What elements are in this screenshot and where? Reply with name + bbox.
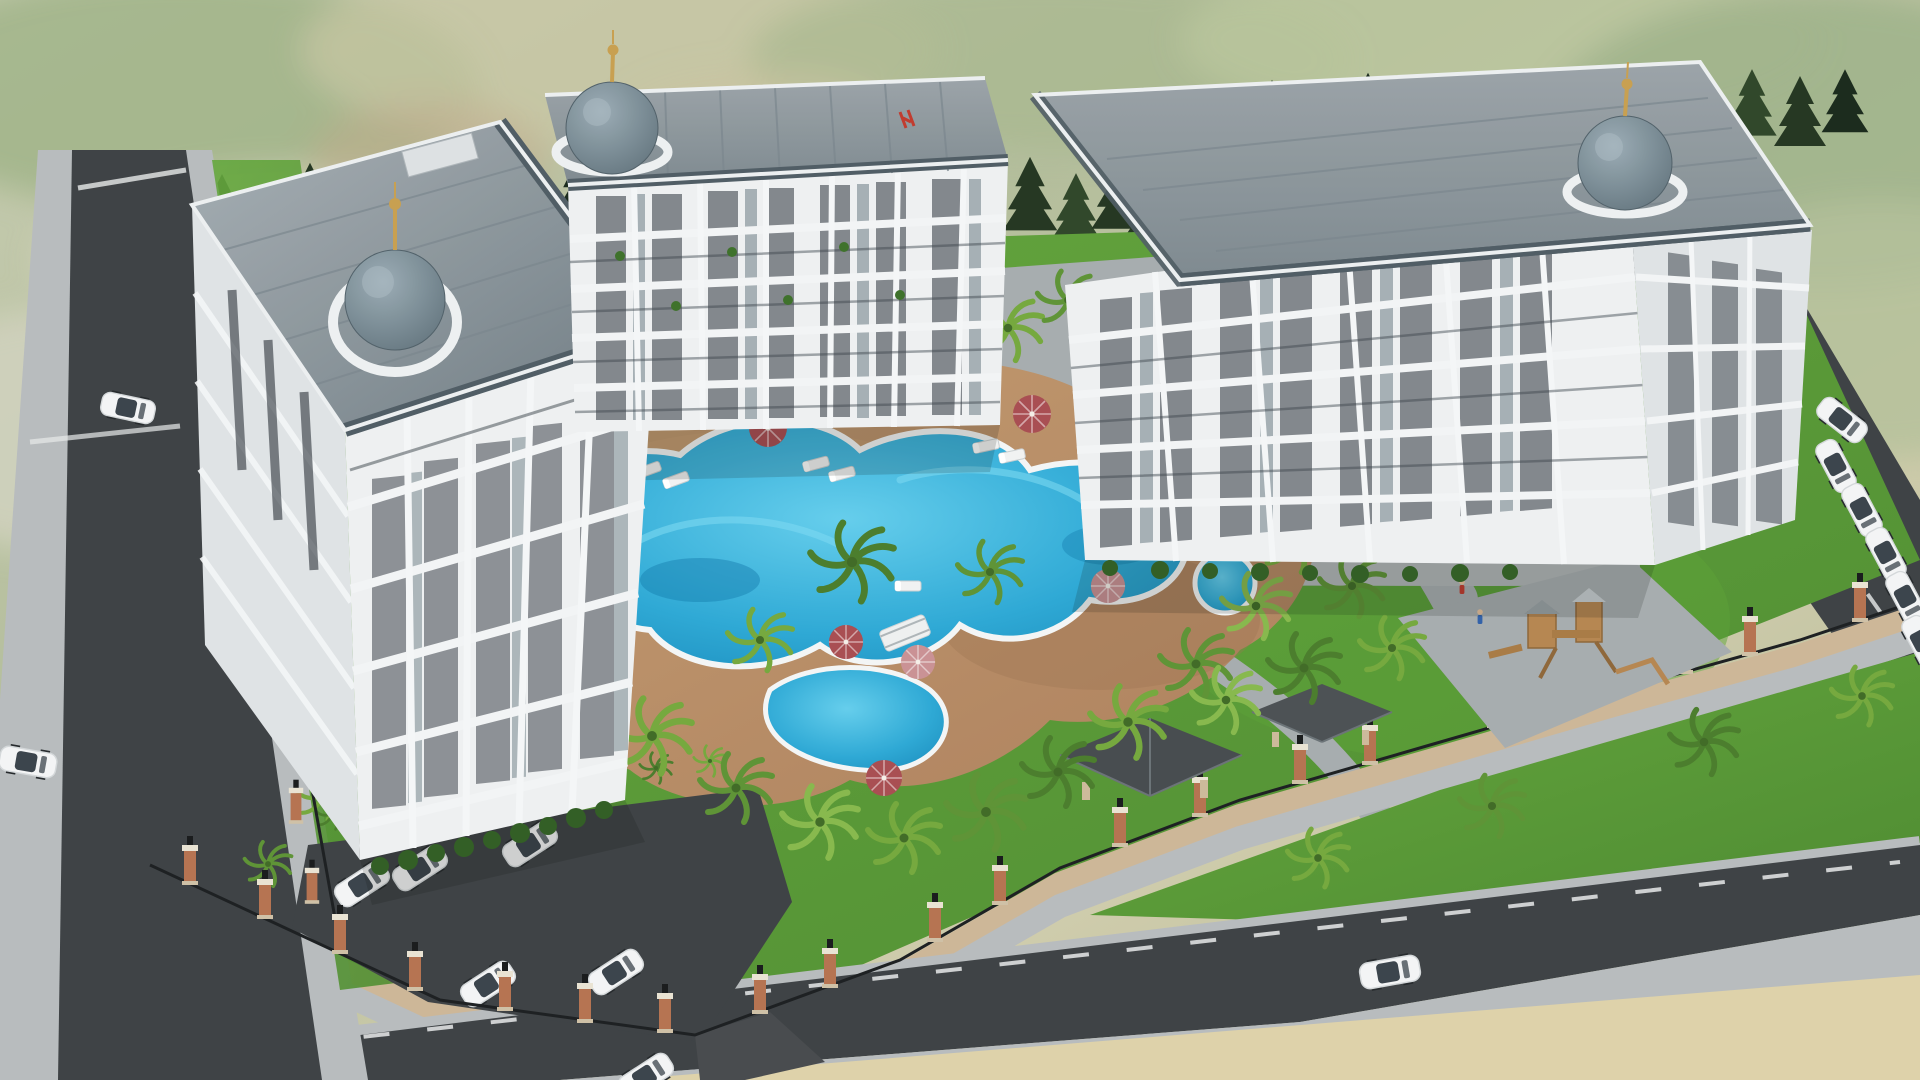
architectural-render [0, 0, 1920, 1080]
scene-canvas [0, 0, 1920, 1080]
light-overlay [0, 0, 1920, 1080]
